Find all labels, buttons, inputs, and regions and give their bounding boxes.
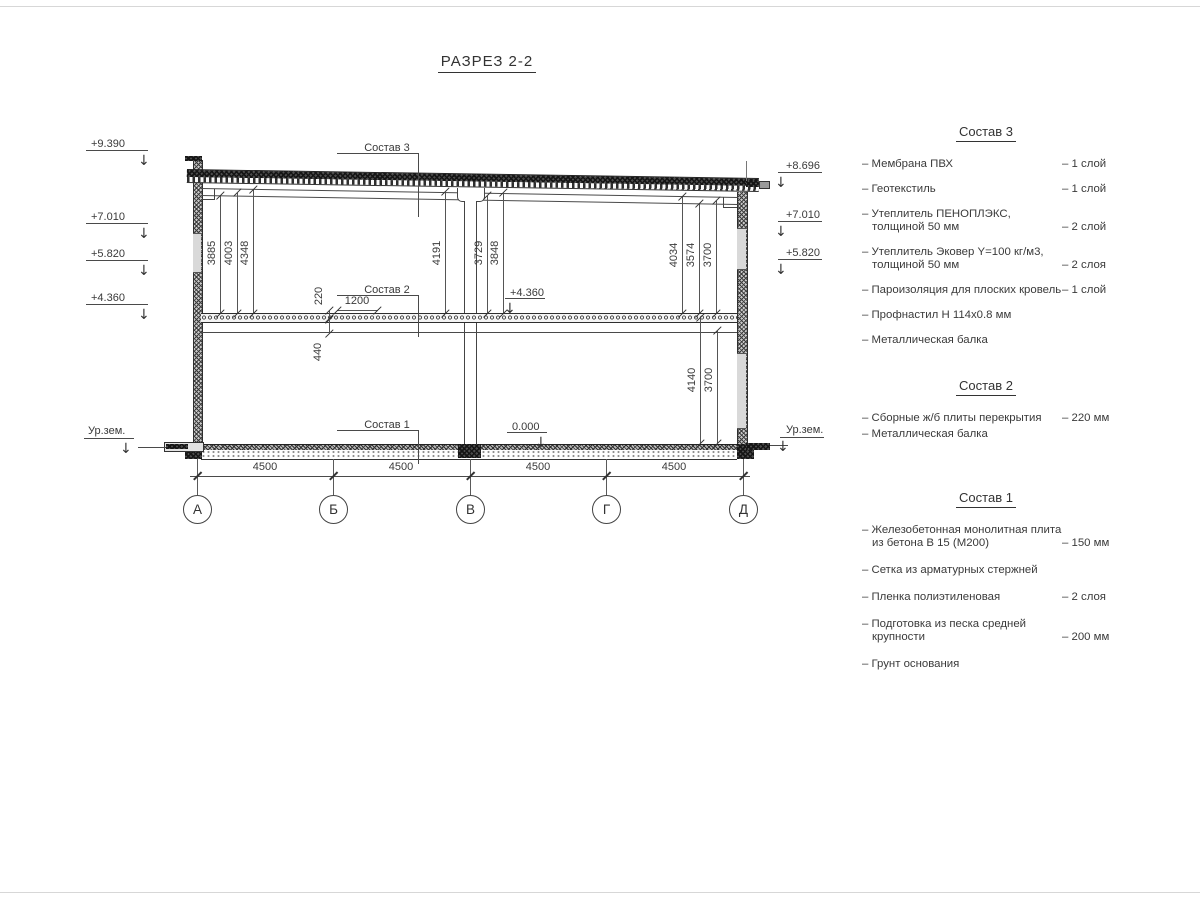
legend-item-value: – 1 слой (1062, 158, 1110, 171)
legend-item: – Сборные ж/б плиты перекрытия – 220 мм (862, 412, 1110, 425)
floor-slab (201, 313, 737, 323)
page-title-text: РАЗРЕЗ 2-2 (438, 53, 537, 73)
legend-item-name: – Подготовка из песка средней крупности (862, 618, 1062, 644)
dim-label: 4500 (253, 461, 277, 473)
callout-underline (337, 295, 418, 296)
axis-letter: Б (329, 502, 338, 517)
elevation-arrow-icon (777, 438, 791, 454)
elevation-mark-right-2: +7.010 (786, 209, 820, 221)
elevation-arrow-icon (138, 225, 152, 241)
elevation-arrow-icon (775, 223, 789, 239)
elevation-underline (778, 259, 822, 260)
left-wall-window (193, 233, 201, 273)
legend-title-text: Состав 1 (956, 490, 1016, 508)
legend-item-name: – Металлическая балка (862, 334, 1062, 347)
legend-item-value: – 2 слой (1062, 221, 1110, 234)
legend-item: – Пленка полиэтиленовая – 2 слоя (862, 591, 1110, 604)
legend-item-value: – 200 мм (1062, 631, 1110, 644)
legend-item-value: – 1 слой (1062, 284, 1110, 297)
axis-bubble-a: А (183, 495, 212, 524)
legend-sostav-2: Состав 2 – Сборные ж/б плиты перекрытия … (862, 378, 1110, 444)
legend-item-name: – Грунт основания (862, 658, 1062, 671)
dim-line (716, 201, 717, 313)
dim-line (699, 204, 700, 313)
axis-bubble-d: Д (729, 495, 758, 524)
elevation-mark-left-2: +7.010 (91, 211, 125, 223)
callout-leader (418, 430, 419, 464)
legend-item: – Металлическая балка (862, 334, 1110, 347)
roof-drain-box (759, 181, 770, 189)
dim-label: 4191 (431, 241, 443, 265)
legend-item: – Грунт основания (862, 658, 1110, 671)
dim-label: 4140 (686, 368, 698, 392)
dim-label: 3574 (685, 243, 697, 267)
dim-line (682, 197, 683, 313)
legend-item-name: – Металлическая балка (862, 428, 1062, 441)
sheet-border-bottom (0, 892, 1200, 893)
column-axis-v (464, 201, 477, 445)
callout-underline (337, 153, 418, 154)
elevation-arrow-icon (138, 262, 152, 278)
elevation-arrow-icon (138, 152, 152, 168)
roof-extension-line (746, 161, 747, 181)
dim-label: 4003 (223, 241, 235, 265)
dim-line (337, 310, 378, 311)
dim-line (237, 193, 238, 313)
axis-bubble-b: Б (319, 495, 348, 524)
dim-label: 3700 (703, 368, 715, 392)
elevation-underline (507, 432, 547, 433)
dim-label: 3885 (206, 241, 218, 265)
left-wall (193, 160, 203, 445)
elevation-mark-left-1: +9.390 (91, 138, 125, 150)
dim-line (717, 331, 718, 443)
dim-line (253, 190, 254, 313)
dim-line (220, 196, 221, 313)
legend-title: Состав 3 (862, 124, 1110, 139)
dim-label: 440 (312, 343, 324, 361)
drawing-sheet: РАЗРЕЗ 2-2 3885 4003 4348 4191 372 (0, 0, 1200, 900)
legend-title-text: Состав 2 (956, 378, 1016, 396)
page-title: РАЗРЕЗ 2-2 (407, 53, 567, 70)
right-wall-window-upper (737, 228, 746, 270)
right-foundation-toe (746, 443, 770, 450)
axis-bubble-v: В (456, 495, 485, 524)
dim-line (445, 192, 446, 313)
dim-label: 4500 (526, 461, 550, 473)
dim-line (503, 193, 504, 313)
column-top-seat (457, 188, 485, 202)
legend-item-value: – 150 мм (1062, 537, 1110, 550)
dim-label: 4348 (239, 241, 251, 265)
axis-letter: Г (603, 502, 610, 517)
dim-label: 220 (313, 287, 325, 305)
legend-item-name: – Железобетонная монолитная плита из бет… (862, 524, 1062, 550)
elevation-arrow-icon (535, 434, 549, 450)
elevation-underline (86, 223, 148, 224)
elevation-underline (778, 221, 822, 222)
elevation-underline (505, 298, 545, 299)
callout-leader (418, 153, 419, 217)
legend-item-name: – Пленка полиэтиленовая (862, 591, 1062, 604)
legend-item: – Пароизоляция для плоских кровель – 1 с… (862, 284, 1110, 297)
elevation-underline (84, 438, 134, 439)
legend-item-name: – Пароизоляция для плоских кровель (862, 284, 1062, 297)
dim-label: 3729 (473, 241, 485, 265)
legend-item-value: – 2 слоя (1062, 591, 1110, 604)
callout-leader (418, 295, 419, 337)
legend-item: – Сетка из арматурных стержней (862, 564, 1110, 577)
dim-label: 4034 (668, 243, 680, 267)
elevation-underline (86, 260, 148, 261)
legend-item: – Утеплитель ПЕНОПЛЭКС, толщиной 50 мм –… (862, 208, 1110, 234)
roof-overhang (746, 180, 759, 187)
ground-line-left (138, 447, 166, 448)
elevation-mark-left-3: +5.820 (91, 248, 125, 260)
elevation-arrow-icon (775, 261, 789, 277)
legend-title: Состав 2 (862, 378, 1110, 393)
legend-item-value: – 1 слой (1062, 183, 1110, 196)
legend-item-value: – 2 слоя (1062, 259, 1110, 272)
legend-item: – Железобетонная монолитная плита из бет… (862, 524, 1110, 550)
elevation-underline (86, 150, 148, 151)
dim-line (700, 318, 701, 443)
dim-label: 3848 (489, 241, 501, 265)
elevation-mark-right-1: +8.696 (786, 160, 820, 172)
legend-item-value: – 220 мм (1062, 412, 1110, 425)
dim-line (329, 319, 330, 333)
legend-title-text: Состав 3 (956, 124, 1016, 142)
legend-item-name: – Сетка из арматурных стержней (862, 564, 1062, 577)
ground-level-mark-right: Ур.зем. (786, 424, 823, 436)
column-footing (458, 444, 481, 458)
elevation-underline (778, 172, 822, 173)
axis-letter: Д (739, 502, 748, 517)
dim-label: 4500 (662, 461, 686, 473)
elevation-mark-right-3: +5.820 (786, 247, 820, 259)
ground-level-mark-left: Ур.зем. (88, 425, 125, 437)
legend-item: – Подготовка из песка средней крупности … (862, 618, 1110, 644)
legend-item-name: – Мембрана ПВХ (862, 158, 1062, 171)
elevation-arrow-icon (775, 174, 789, 190)
legend-sostav-3: Состав 3 – Мембрана ПВХ – 1 слой – Геоте… (862, 124, 1110, 359)
floor-beam-bottom-line (201, 332, 737, 333)
dim-line (487, 196, 488, 313)
callout-underline (337, 430, 418, 431)
legend-item-name: – Сборные ж/б плиты перекрытия (862, 412, 1062, 425)
legend-item: – Профнастил Н 114х0.8 мм (862, 309, 1110, 322)
right-wall-window-lower (737, 353, 746, 429)
elevation-arrow-icon (138, 306, 152, 322)
legend-item: – Утеплитель Эковер Y=100 кг/м3, толщино… (862, 246, 1110, 272)
dim-label: 3700 (702, 243, 714, 267)
left-beam-seat (201, 189, 215, 200)
legend-item-name: – Утеплитель Эковер Y=100 кг/м3, толщино… (862, 246, 1062, 272)
legend-item: – Мембрана ПВХ – 1 слой (862, 158, 1110, 171)
elevation-arrow-icon (120, 440, 134, 456)
right-beam-seat (723, 197, 737, 208)
axis-bubble-g: Г (592, 495, 621, 524)
sheet-border-top (0, 6, 1200, 7)
legend-item-name: – Геотекстиль (862, 183, 1062, 196)
legend-item: – Геотекстиль – 1 слой (862, 183, 1110, 196)
legend-item-name: – Профнастил Н 114х0.8 мм (862, 309, 1062, 322)
legend-item: – Металлическая балка (862, 428, 1110, 441)
elevation-mark-left-4: +4.360 (91, 292, 125, 304)
elevation-underline (86, 304, 148, 305)
axis-letter: А (193, 502, 202, 517)
left-parapet-cap (185, 156, 202, 161)
elevation-arrow-icon (504, 300, 518, 316)
left-toe-hatch (166, 444, 188, 449)
legend-sostav-1: Состав 1 – Железобетонная монолитная пли… (862, 490, 1110, 685)
dim-label: 4500 (389, 461, 413, 473)
axis-letter: В (466, 502, 475, 517)
legend-item-name: – Утеплитель ПЕНОПЛЭКС, толщиной 50 мм (862, 208, 1062, 234)
legend-title: Состав 1 (862, 490, 1110, 505)
dim-label: 1200 (345, 295, 369, 307)
